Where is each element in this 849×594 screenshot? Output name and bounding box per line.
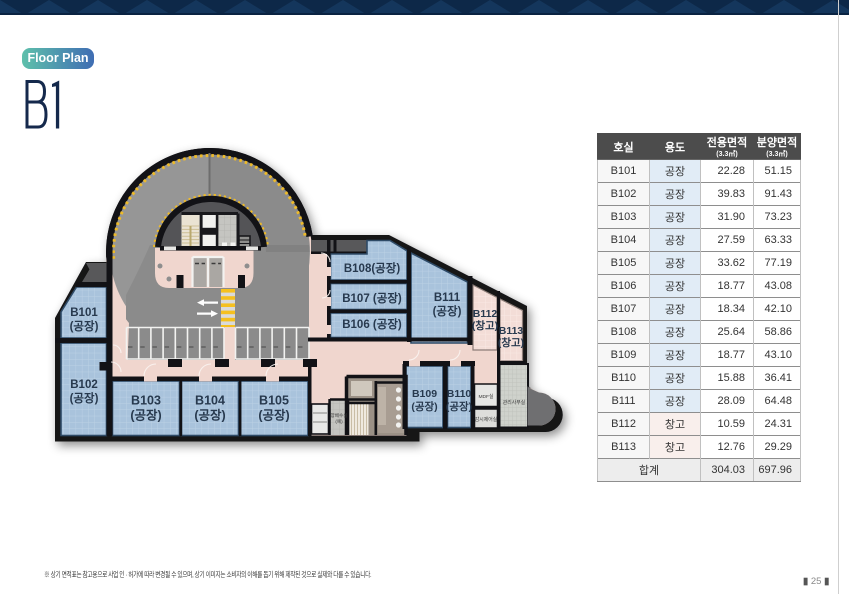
svg-text:B104: B104: [195, 394, 225, 408]
svg-text:(공장): (공장): [130, 408, 161, 423]
svg-text:B109: B109: [412, 388, 437, 400]
svg-text:관리사무실: 관리사무실: [503, 399, 526, 406]
svg-text:B107 (공장): B107 (공장): [342, 291, 402, 305]
svg-text:B103: B103: [131, 394, 161, 408]
svg-text:감시제어실: 감시제어실: [475, 416, 498, 423]
svg-text:(공장): (공장): [70, 319, 99, 333]
svg-text:(공장): (공장): [70, 391, 99, 405]
svg-text:B113: B113: [499, 325, 524, 337]
svg-text:(창고): (창고): [472, 319, 498, 332]
svg-text:(공장): (공장): [411, 400, 437, 413]
svg-text:B108(공장): B108(공장): [344, 261, 400, 275]
svg-text:B102: B102: [70, 379, 98, 391]
svg-text:B111: B111: [434, 292, 461, 304]
svg-text:MDF실: MDF실: [478, 393, 494, 400]
svg-text:(창고): (창고): [498, 336, 524, 349]
svg-text:B106 (공장): B106 (공장): [342, 317, 402, 331]
svg-text:B112: B112: [473, 308, 498, 320]
svg-text:(공장): (공장): [258, 408, 289, 423]
svg-text:B105: B105: [259, 394, 289, 408]
svg-text:B110: B110: [447, 388, 472, 400]
svg-text:(공장): (공장): [433, 304, 462, 318]
svg-text:(공장): (공장): [446, 400, 472, 413]
svg-text:B101: B101: [70, 307, 98, 319]
svg-text:(예): (예): [335, 418, 343, 425]
svg-text:양배수실: 양배수실: [331, 412, 348, 419]
svg-text:(공장): (공장): [194, 408, 225, 423]
